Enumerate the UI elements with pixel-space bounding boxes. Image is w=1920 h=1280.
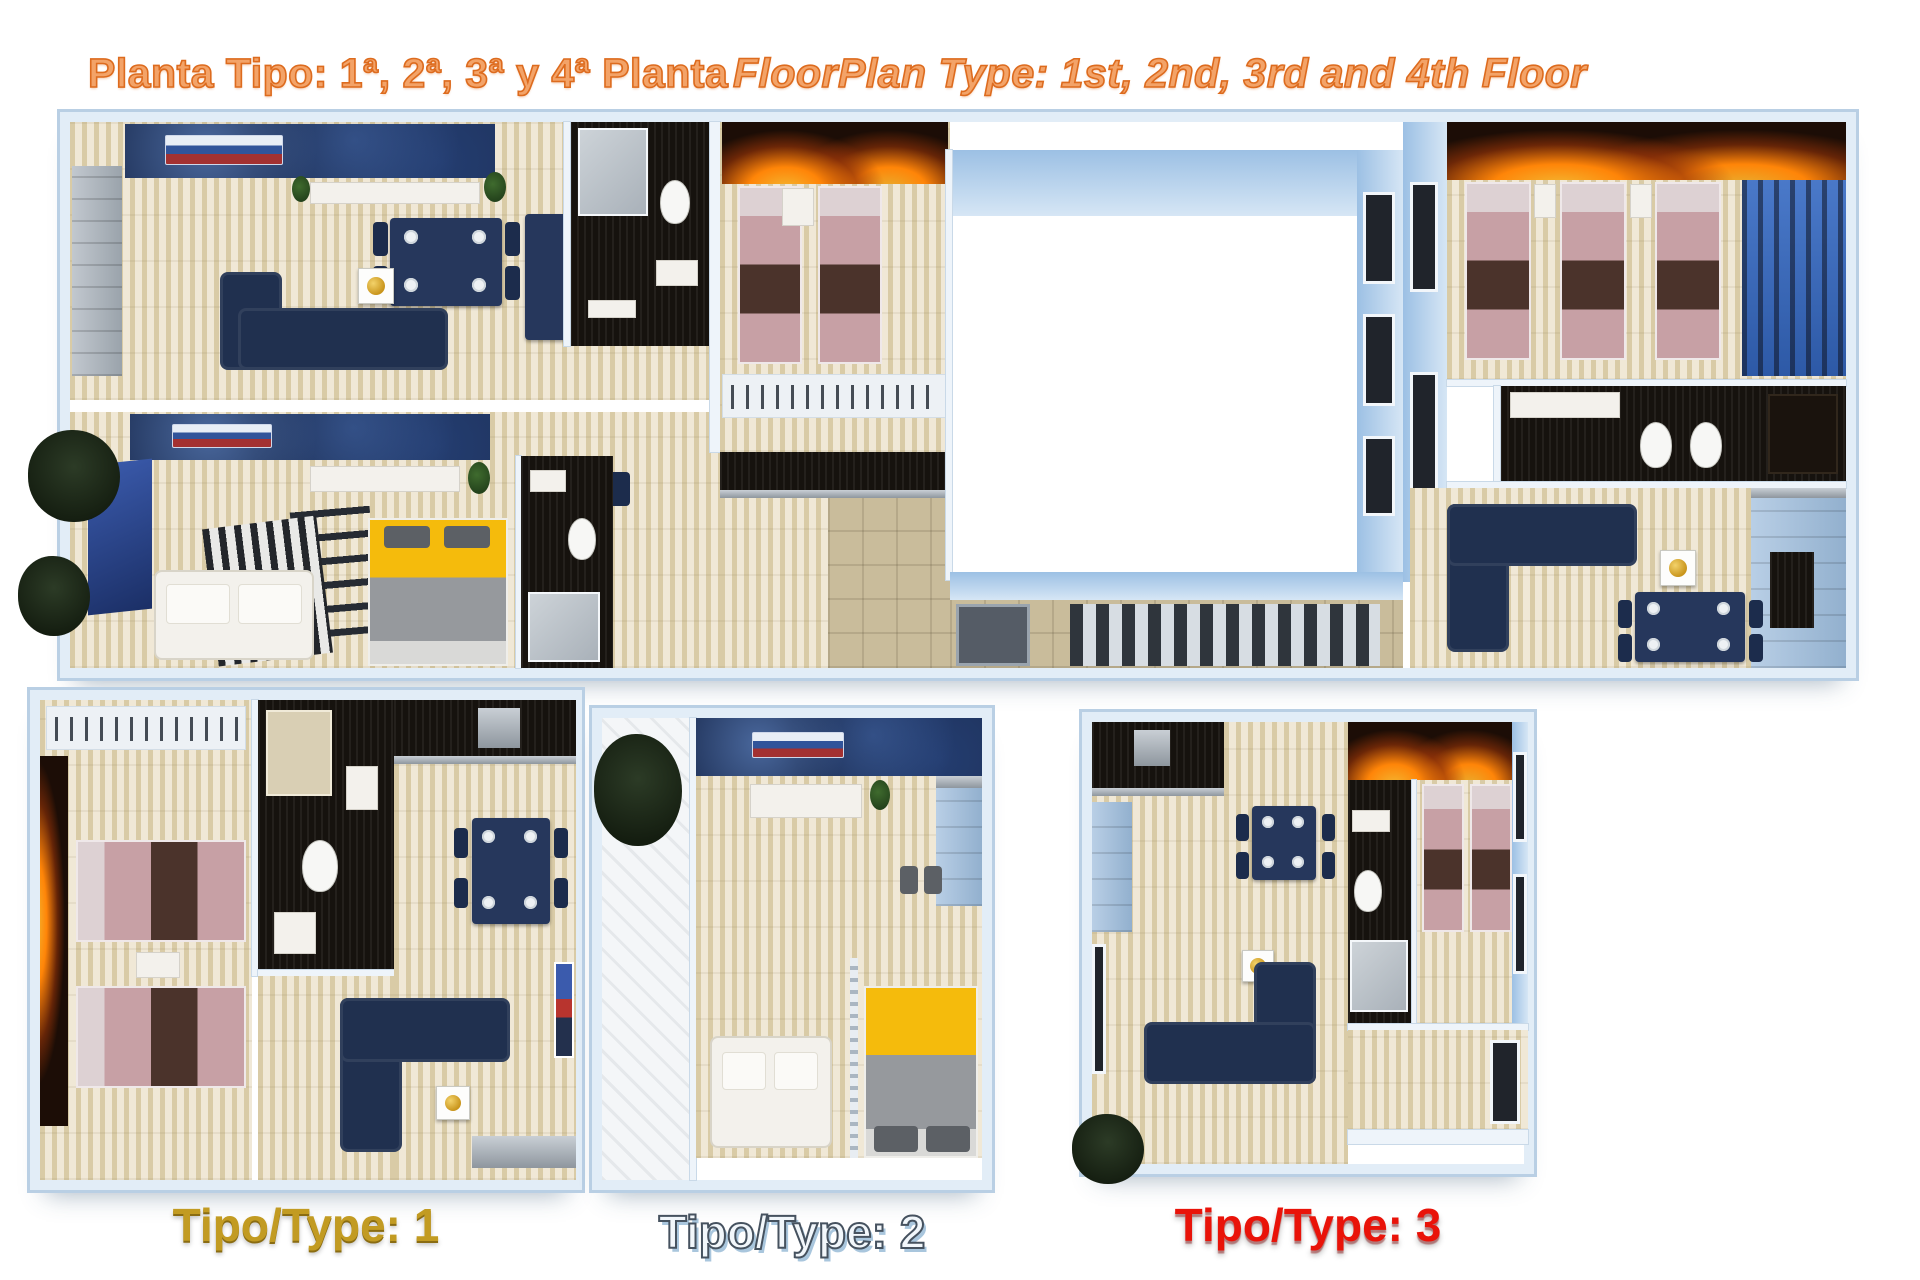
plate-icon xyxy=(1647,638,1660,651)
t3-sofa xyxy=(1144,1022,1316,1084)
t2-tv-logo xyxy=(752,732,844,758)
extractor-hood-icon xyxy=(1134,730,1170,766)
dining-chair xyxy=(1749,634,1763,662)
type3-label: Tipo/Type: 3 xyxy=(1082,1198,1534,1252)
bathroom-sink xyxy=(346,766,378,810)
staircase xyxy=(1070,604,1380,666)
t3-kitchen-cabinets xyxy=(1092,802,1132,932)
bathroom-vanity xyxy=(1768,394,1838,474)
coffee-table-gold-emblem xyxy=(436,1086,470,1120)
shower-tray xyxy=(528,592,600,662)
plate-icon xyxy=(1292,856,1304,868)
window-icon xyxy=(1513,752,1527,842)
shower-tray xyxy=(266,710,332,796)
window-icon xyxy=(1410,372,1438,502)
type2-label: Tipo/Type: 2 xyxy=(592,1205,992,1259)
tv-sideboard xyxy=(472,1136,576,1168)
plate-icon xyxy=(524,896,537,909)
t3-dining-table xyxy=(1252,806,1316,880)
coffee-table-gold-emblem xyxy=(358,268,394,304)
dining-chair xyxy=(373,222,388,256)
cushion-icon xyxy=(774,1052,818,1090)
bidet-icon xyxy=(1690,422,1722,468)
plate-icon xyxy=(1717,638,1730,651)
dining-chair xyxy=(454,878,468,908)
twin-bed-pink xyxy=(1470,784,1512,932)
bathroom-sink-counter xyxy=(1510,392,1620,418)
window-icon xyxy=(1363,436,1395,516)
floorplan-type2 xyxy=(592,708,992,1190)
bathroom-sink xyxy=(1352,810,1390,832)
led-fire-ceiling xyxy=(1348,722,1512,780)
twin-bed-pink xyxy=(818,186,882,364)
gold-emblem-icon xyxy=(367,277,385,295)
kitchen-counter-edge xyxy=(394,756,576,764)
plant-icon xyxy=(468,462,490,494)
extractor-hood-icon xyxy=(478,708,520,748)
kitchen-counter-edge xyxy=(1092,788,1224,796)
dining-chair xyxy=(1322,814,1335,841)
t1-sofa xyxy=(340,998,510,1062)
plate-icon xyxy=(1292,816,1304,828)
t2-white-sofa xyxy=(710,1036,832,1148)
kitchen-counter-edge xyxy=(720,490,950,498)
floorplan-sheet: Planta Tipo: 1ª, 2ª, 3ª y 4ª Planta Floo… xyxy=(0,0,1920,1280)
apartment-a-tv-logo xyxy=(165,135,283,165)
nightstand xyxy=(1630,184,1652,218)
pillow-icon xyxy=(926,1126,970,1152)
plate-icon xyxy=(524,830,537,843)
tree-icon xyxy=(594,734,682,846)
window-icon xyxy=(1490,1040,1520,1124)
dining-chair xyxy=(1749,600,1763,628)
bathroom-sink xyxy=(530,470,566,492)
towel-shelf xyxy=(588,300,636,318)
plant-icon xyxy=(292,176,310,202)
led-fire-ceiling xyxy=(722,122,948,184)
french-window xyxy=(1092,944,1106,1074)
plate-icon xyxy=(482,830,495,843)
apartment-b-double-bed-yellow xyxy=(368,518,508,666)
apartment-b-console xyxy=(310,466,460,492)
kitchen-counter-edge xyxy=(1751,488,1846,498)
tree-icon xyxy=(28,430,120,522)
page-title-english: FloorPlan Type: 1st, 2nd, 3rd and 4th Fl… xyxy=(733,50,1587,97)
nightstand xyxy=(136,952,180,978)
twin-bed-pink xyxy=(1655,182,1721,360)
plate-icon xyxy=(1717,602,1730,615)
toilet-icon xyxy=(1640,422,1672,468)
led-fire-ceiling xyxy=(1447,122,1846,180)
slatted-divider xyxy=(850,958,858,1158)
balcony-band xyxy=(1348,1130,1528,1144)
dining-chair xyxy=(454,828,468,858)
page-title-spanish: Planta Tipo: 1ª, 2ª, 3ª y 4ª Planta xyxy=(88,50,728,97)
apartment-a-sideboard xyxy=(310,182,480,204)
apartment-a-sofa xyxy=(238,308,448,370)
toilet-icon xyxy=(568,518,596,560)
toilet-icon xyxy=(660,180,690,224)
kitchen-appliance-column xyxy=(1770,552,1814,628)
apartment-a-dining-table xyxy=(390,218,502,306)
twin-bed-pink xyxy=(1422,784,1464,932)
lightwell-bottom-wall xyxy=(950,572,1403,600)
kitchen-counter-dark xyxy=(720,452,950,490)
wall-art-poster xyxy=(554,962,574,1058)
floorplan-main xyxy=(60,112,1856,678)
pillow-icon xyxy=(384,526,430,548)
dining-chair xyxy=(505,222,520,256)
dining-chair xyxy=(1618,634,1632,662)
coffee-table-gold-emblem xyxy=(1660,550,1696,586)
plate-icon xyxy=(472,278,486,292)
t1-dining-table xyxy=(472,818,550,924)
twin-bed-pink xyxy=(1465,182,1531,360)
type1-label: Tipo/Type: 1 xyxy=(30,1198,582,1252)
plate-icon xyxy=(1262,816,1274,828)
window-icon xyxy=(1513,874,1527,974)
t1-living-floor xyxy=(394,700,576,1180)
gold-emblem-icon xyxy=(1669,559,1687,577)
cushion-icon xyxy=(722,1052,766,1090)
plate-icon xyxy=(472,230,486,244)
dining-chair xyxy=(505,266,520,300)
wall xyxy=(710,122,720,452)
t2-console xyxy=(750,784,862,818)
apartment-a-bar-counter xyxy=(525,214,567,340)
hanger-rail-icon xyxy=(55,717,239,741)
t1-closet-band xyxy=(46,706,246,750)
nightstand xyxy=(1534,184,1556,218)
twin-bed-pink xyxy=(1560,182,1626,360)
dining-chair xyxy=(554,878,568,908)
plate-icon xyxy=(1647,602,1660,615)
floorplan-type1 xyxy=(30,690,582,1190)
lightwell-top-wall xyxy=(950,150,1403,216)
plate-icon xyxy=(404,278,418,292)
wall xyxy=(1412,780,1416,1024)
window-icon xyxy=(1363,314,1395,406)
tree-icon xyxy=(1072,1114,1144,1184)
cushion-icon xyxy=(166,584,230,624)
slipper-chair xyxy=(900,866,918,894)
shower-tray xyxy=(578,128,648,216)
cushion-icon xyxy=(238,584,302,624)
shower-tray xyxy=(1350,940,1408,1012)
floorplan-type3 xyxy=(1082,712,1534,1174)
right-dining-table xyxy=(1635,592,1745,662)
plant-icon xyxy=(870,780,890,810)
gold-emblem-icon xyxy=(445,1095,461,1111)
closet-band xyxy=(722,374,948,418)
window-icon xyxy=(1363,192,1395,284)
plate-icon xyxy=(1262,856,1274,868)
plant-icon xyxy=(484,172,506,202)
plate-icon xyxy=(404,230,418,244)
twin-bed-pink xyxy=(76,986,246,1088)
nightstand xyxy=(782,188,814,226)
wall xyxy=(1494,386,1500,482)
corridor-floor xyxy=(720,498,828,668)
kitchen-counter-edge xyxy=(936,776,982,788)
pillow-icon xyxy=(874,1126,918,1152)
elevator-shaft xyxy=(956,604,1030,666)
lightwell-left-wall xyxy=(946,150,952,580)
dining-chair xyxy=(1236,852,1249,879)
dining-chair xyxy=(1322,852,1335,879)
window-icon xyxy=(1410,182,1438,292)
dining-chair xyxy=(554,828,568,858)
slipper-chair xyxy=(924,866,942,894)
t2-kitchen-cabinets xyxy=(936,788,982,906)
washbasin-unit xyxy=(274,912,316,954)
pillow-icon xyxy=(444,526,490,548)
dining-chair xyxy=(1618,600,1632,628)
tree-icon xyxy=(18,556,90,636)
toilet-icon xyxy=(1354,870,1382,912)
right-sofa xyxy=(1447,504,1637,566)
apartment-b-white-sofa xyxy=(154,570,314,660)
toilet-icon xyxy=(302,840,338,892)
t2-double-bed-yellow-gray xyxy=(864,986,978,1158)
open-wardrobe-blue xyxy=(1742,180,1846,376)
dining-chair xyxy=(1236,814,1249,841)
corridor-tan-tiles xyxy=(828,498,950,668)
hanger-rail-icon xyxy=(731,385,941,409)
apartment-b-tv-logo xyxy=(172,424,272,448)
apartment-a-shelving xyxy=(72,166,122,376)
twin-bed-pink xyxy=(76,840,246,942)
led-fire-wall xyxy=(40,756,68,1126)
bathroom-sink xyxy=(656,260,698,286)
wall xyxy=(564,122,570,346)
plate-icon xyxy=(482,896,495,909)
